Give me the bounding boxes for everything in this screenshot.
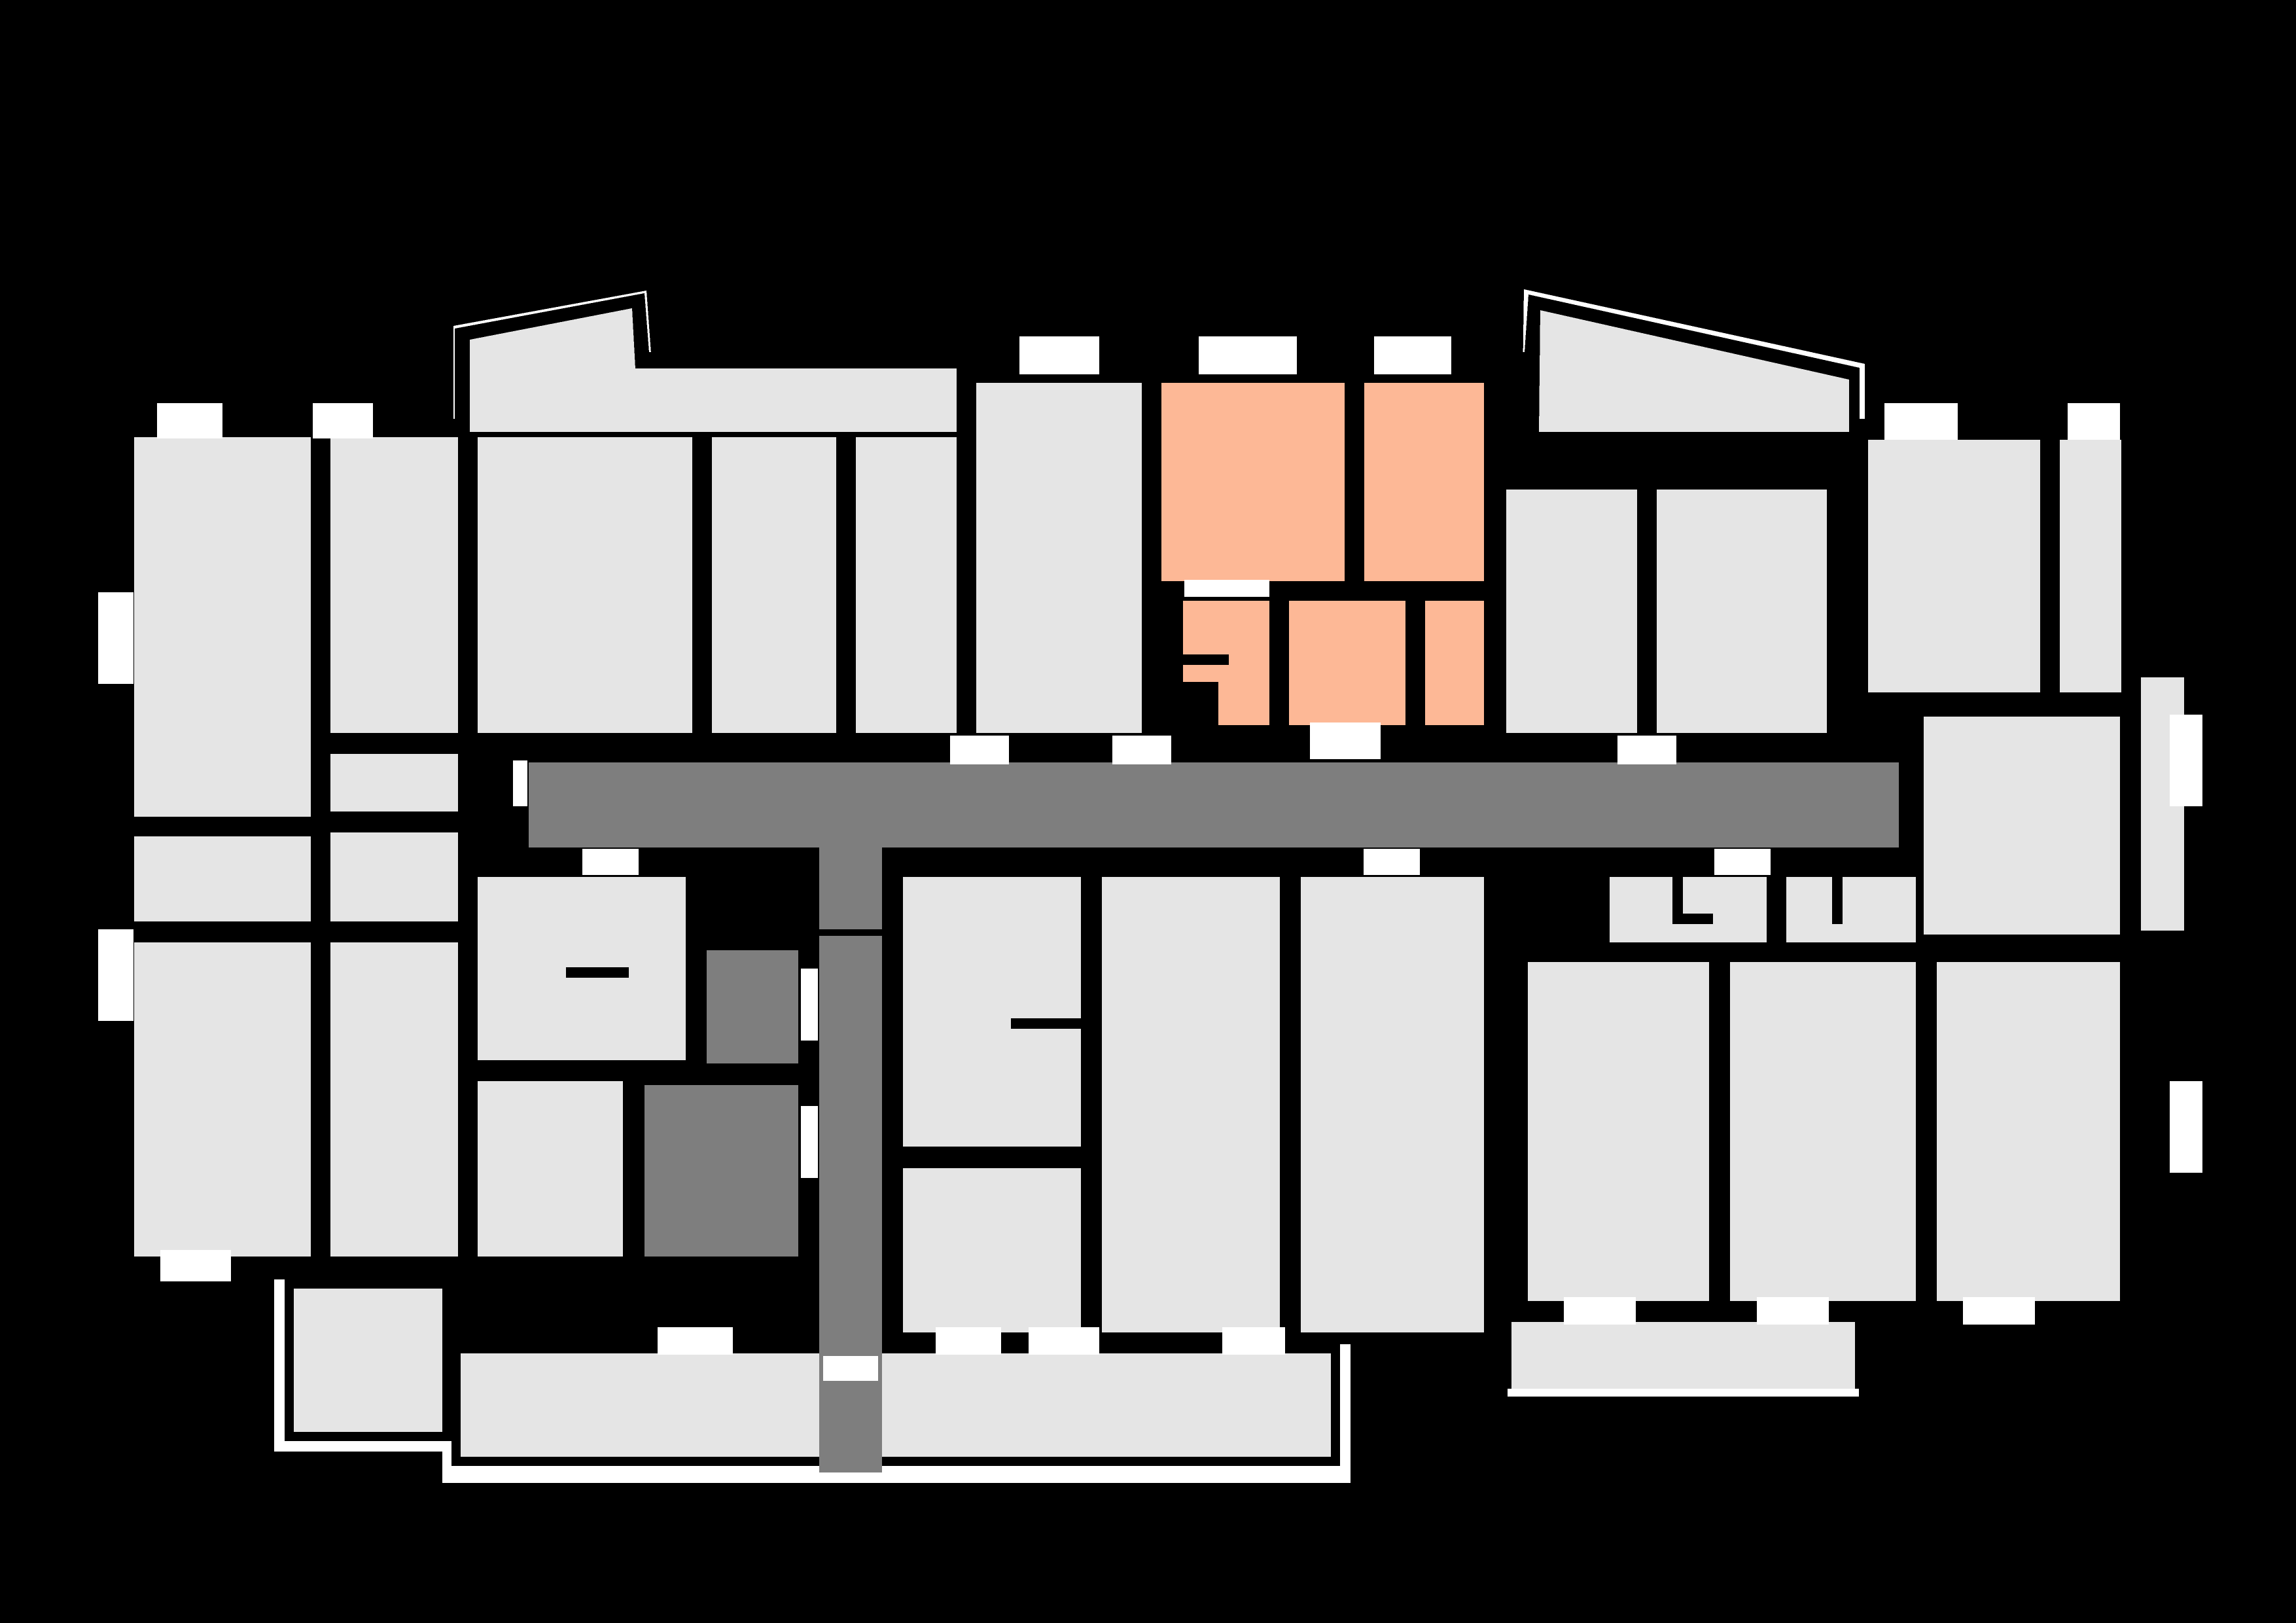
window-upper-right-2 bbox=[2068, 403, 2120, 440]
room-lower-mid-5 bbox=[1102, 877, 1280, 1332]
apartment-room-living[interactable] bbox=[1161, 383, 1345, 581]
floorplan-stage bbox=[0, 0, 2296, 1623]
apartment-room-bath[interactable] bbox=[1425, 601, 1484, 725]
room-lower-left-4 bbox=[330, 832, 458, 921]
room-lower-right-bath-2 bbox=[1786, 877, 1916, 942]
window-apartment-bedroom bbox=[1374, 336, 1451, 374]
wall-stub-bath-1b bbox=[1672, 914, 1713, 924]
room-upper-left-4 bbox=[712, 437, 836, 733]
window-left-wing-2 bbox=[313, 403, 373, 438]
room-lower-mid-2 bbox=[478, 1081, 623, 1257]
room-lower-left-1 bbox=[134, 836, 311, 921]
room-lower-left-2 bbox=[134, 942, 311, 1257]
wall-stub-lower-mid-1 bbox=[566, 967, 629, 978]
wall-stub-bath-2 bbox=[1832, 877, 1843, 924]
window-upper-right-1 bbox=[1884, 403, 1958, 440]
room-mid-right bbox=[1924, 717, 2120, 935]
room-lower-right-2 bbox=[1730, 962, 1916, 1301]
window-bottom-3 bbox=[1029, 1327, 1099, 1355]
balcony-bottom-right-strip bbox=[1511, 1322, 1855, 1389]
door-corridor-top-1 bbox=[950, 736, 1009, 764]
door-left-hall bbox=[513, 760, 527, 806]
door-stair-core bbox=[801, 1106, 818, 1178]
room-upper-left-2 bbox=[330, 437, 458, 733]
room-upper-left-1 bbox=[134, 437, 311, 817]
door-corridor-top-2 bbox=[1112, 736, 1171, 764]
room-upper-left-3 bbox=[478, 437, 692, 733]
window-upper-mid bbox=[1019, 336, 1099, 374]
room-lower-right-3 bbox=[1937, 962, 2120, 1301]
wall-stub-lower-mid-3 bbox=[1011, 1018, 1083, 1029]
terrace-bottom-left-floor bbox=[294, 1289, 442, 1432]
room-upper-mid bbox=[976, 383, 1142, 733]
door-corridor-bottom-2 bbox=[1364, 849, 1420, 875]
room-lower-mid-4 bbox=[903, 1168, 1081, 1332]
door-corridor-top-3 bbox=[1617, 736, 1676, 764]
window-bottom-right-1 bbox=[1564, 1297, 1636, 1325]
terrace-bottom-floor bbox=[461, 1353, 1331, 1457]
room-lower-right-1 bbox=[1528, 962, 1709, 1301]
door-corridor-bottom-3 bbox=[1714, 849, 1771, 875]
room-lower-left-3 bbox=[330, 754, 458, 811]
door-apartment-living bbox=[1184, 580, 1269, 597]
corridor-horizontal bbox=[529, 762, 1899, 847]
window-left-wing-1 bbox=[157, 403, 222, 438]
window-bottom-1 bbox=[658, 1327, 733, 1355]
door-corridor-bottom-1 bbox=[582, 849, 639, 875]
door-elevator-core bbox=[801, 969, 818, 1041]
room-lower-left-5 bbox=[330, 942, 458, 1257]
room-upper-right-4 bbox=[2060, 440, 2121, 692]
room-lower-mid-6 bbox=[1301, 877, 1484, 1332]
window-bottom-4 bbox=[1222, 1327, 1285, 1355]
window-bottom-right-3 bbox=[1963, 1297, 2035, 1325]
room-upper-left-5 bbox=[856, 437, 957, 733]
room-upper-right-3 bbox=[1868, 440, 2040, 692]
room-lower-mid-3 bbox=[903, 877, 1081, 1147]
door-terrace-stub bbox=[823, 1356, 878, 1381]
balcony-strip-underline bbox=[1508, 1389, 1859, 1397]
window-bottom-2 bbox=[936, 1327, 1001, 1355]
elevator-core bbox=[707, 950, 798, 1063]
window-bottom-right-2 bbox=[1757, 1297, 1829, 1325]
room-upper-right-1 bbox=[1506, 490, 1637, 733]
window-left-edge-2 bbox=[98, 929, 133, 1021]
room-upper-right-2 bbox=[1657, 490, 1827, 733]
stair-core bbox=[645, 1085, 798, 1257]
window-right-edge-1 bbox=[2170, 715, 2202, 806]
window-apartment-living bbox=[1199, 336, 1297, 374]
window-right-edge-2 bbox=[2170, 1081, 2202, 1173]
window-apartment-kitchen bbox=[1310, 722, 1381, 759]
window-left-edge-1 bbox=[98, 592, 133, 684]
room-lower-right-bath-1 bbox=[1610, 877, 1767, 942]
corridor-threshold-line bbox=[819, 929, 882, 936]
floorplan-svg bbox=[0, 0, 2296, 1623]
window-lower-left bbox=[160, 1250, 231, 1281]
apartment-room-kitchen[interactable] bbox=[1289, 601, 1405, 725]
wall-stub-apartment-hall bbox=[1183, 654, 1229, 665]
apartment-room-bedroom[interactable] bbox=[1364, 383, 1484, 581]
